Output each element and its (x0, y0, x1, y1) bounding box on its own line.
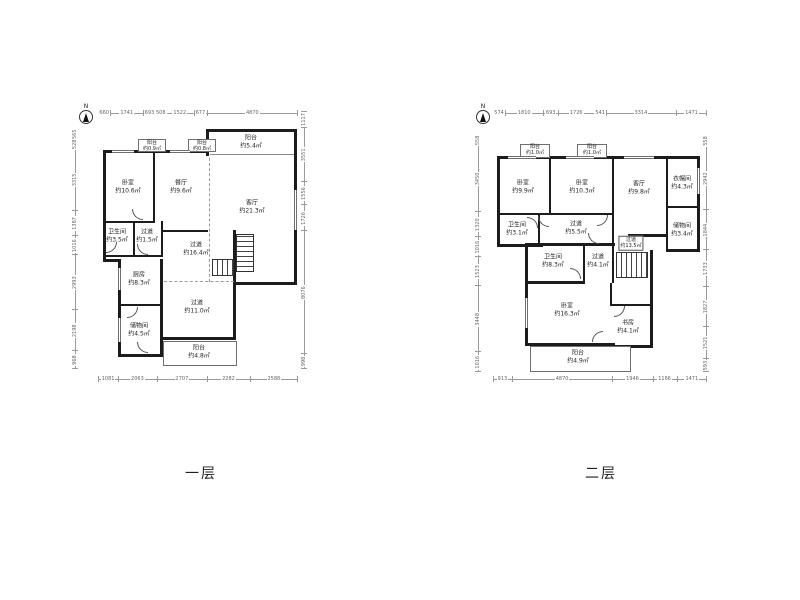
dimension-chain-bottom-floor1: 1081 2063 2707 2282 2588 (98, 374, 298, 383)
room-area: 约5.4㎡ (240, 142, 262, 150)
room-area: 约0.9㎡ (143, 146, 161, 152)
dimension-segment: 2063 (118, 376, 156, 382)
room-name: 卧室 (115, 180, 140, 188)
room-name: 卧室 (512, 180, 534, 188)
room-name: 书房 (617, 320, 639, 328)
window-marker (525, 298, 528, 328)
room-label-bedroom: 卧室约9.9㎡ (512, 180, 534, 195)
room-label-living: 客厅约9.8㎡ (628, 181, 650, 196)
dimension-segment: 1741 (110, 110, 143, 116)
dimension-value: 558 (475, 135, 481, 147)
dimension-segment: 1016 (475, 352, 481, 372)
dimension-value: 1522 (172, 110, 187, 116)
dimension-value: 1081 (101, 376, 116, 382)
room-label-hallway: 过道约5.5㎡ (565, 221, 587, 236)
dimension-segment: 1726 (301, 205, 307, 231)
dimension-segment: 558 (703, 135, 709, 147)
room-label-storage: 储物间约4.5㎡ (128, 323, 150, 338)
wall-segment (103, 221, 155, 223)
room-label-storage: 储物间约3.4㎡ (671, 223, 693, 238)
window-marker (508, 156, 536, 159)
window-marker (170, 150, 190, 153)
room-area: 约13.5㎡ (620, 243, 641, 249)
dimension-segment: 1117 (301, 111, 307, 128)
dimension-value: 1946 (625, 376, 640, 382)
compass-needle-icon (83, 113, 89, 122)
room-label-hallway: 过道约4.1㎡ (587, 254, 609, 269)
wall-segment (233, 282, 297, 285)
room-area: 约16.4㎡ (183, 249, 208, 257)
dimension-segment: 1726 (558, 110, 594, 116)
door-arc (106, 242, 117, 253)
room-area: 约9.9㎡ (512, 187, 534, 195)
room-name: 卫生间 (106, 229, 128, 237)
room-name: 餐厅 (170, 180, 192, 188)
room-area: 约1.0㎡ (583, 150, 601, 156)
dimension-value: 1556 (301, 186, 307, 201)
dimension-chain-top-floor1: 660 1741 693 508 1522 677 4870 (98, 108, 298, 117)
dimension-segment: 1523 (475, 257, 481, 286)
dimension-value: 1471 (684, 376, 699, 382)
room-name: 卫生间 (542, 254, 564, 262)
room-label-bathroom: 卫生间约3.1㎡ (506, 222, 528, 237)
room-label-study: 书房约4.1㎡ (617, 320, 639, 335)
room-area: 约1.5㎡ (136, 236, 158, 244)
room-area: 约16.3㎡ (554, 310, 579, 318)
dimension-value: 1117 (301, 112, 307, 127)
room-label-bedroom: 卧室约10.6㎡ (115, 180, 140, 195)
dimension-segment: 2588 (250, 376, 298, 382)
dimension-segment: 593 (703, 359, 709, 372)
door-arc (614, 306, 625, 317)
dimension-segment: 1521 (703, 327, 709, 360)
room-label-balcony: 阳台约1.0㎡ (583, 144, 601, 157)
room-area: 约4.8㎡ (188, 352, 210, 360)
staircase (616, 252, 648, 278)
room-label-balcony: 阳台约0.9㎡ (143, 140, 161, 153)
dimension-value: 1521 (703, 336, 709, 351)
door-arc (592, 331, 603, 342)
window-marker (112, 150, 134, 153)
room-area: 约5.5㎡ (565, 228, 587, 236)
dimension-value: 693 (144, 110, 156, 116)
dimension-segment: 2282 (207, 376, 250, 382)
dimension-segment: 1827 (703, 287, 709, 326)
room-label-cloakroom: 衣帽间约4.3㎡ (671, 176, 693, 191)
room-label-balcony: 阳台约0.8㎡ (193, 140, 211, 153)
dimension-value: 1844 (703, 223, 709, 238)
compass-icon: N (475, 103, 491, 124)
room-name: 过道 (587, 254, 609, 262)
room-label-balcony: 阳台约4.9㎡ (567, 350, 589, 365)
room-area: 约9.6㎡ (170, 187, 192, 195)
room-area: 约21.3㎡ (239, 207, 264, 215)
room-area: 约4.1㎡ (587, 261, 609, 269)
room-name: 卫生间 (506, 222, 528, 230)
room-name: 衣帽间 (671, 176, 693, 184)
dimension-value: 1016 (475, 355, 481, 370)
door-arc (137, 244, 148, 255)
dimension-value: 4870 (245, 110, 260, 116)
wall-segment (612, 159, 614, 249)
dimension-value: 2588 (267, 376, 282, 382)
dashed-divider (209, 158, 210, 282)
dimension-value: 913 (497, 376, 509, 382)
wall-segment (160, 337, 236, 340)
dimension-value: 8076 (301, 285, 307, 300)
wall-segment (118, 354, 163, 357)
room-area: 约8.3㎡ (128, 279, 150, 287)
wall-segment (650, 250, 653, 348)
dimension-value: 574 (493, 110, 505, 116)
wall-segment (497, 156, 500, 247)
dimension-value: 3315 (72, 173, 78, 188)
dimension-chain-right-floor1: 1117 3551 1556 1726 8076 998 (299, 111, 308, 369)
floor1-title: 一层 (185, 463, 217, 483)
dimension-value: 1827 (703, 300, 709, 315)
room-label-kitchen: 厨房约8.3㎡ (128, 272, 150, 287)
room-area: 约10.6㎡ (115, 187, 140, 195)
dimension-segment: 3551 (301, 128, 307, 182)
dimension-value: 2198 (72, 323, 78, 338)
window-marker (294, 190, 297, 230)
dimension-segment: 660 (98, 110, 110, 116)
room-label-hallway: 过道约1.5㎡ (136, 229, 158, 244)
dimension-value: 968 (72, 354, 78, 366)
dimension-value: 3551 (301, 147, 307, 162)
wall-segment (549, 159, 551, 215)
room-area: 约4.9㎡ (567, 357, 589, 365)
dimension-value: 541 (594, 110, 606, 116)
room-label-dining: 餐厅约9.6㎡ (170, 180, 192, 195)
dimension-value: 2993 (72, 275, 78, 290)
room-label-hallway: 过道约13.5㎡ (618, 236, 643, 251)
wall-segment (206, 129, 297, 132)
dimension-value: 1741 (119, 110, 134, 116)
room-area: 约0.8㎡ (193, 146, 211, 152)
dimension-segment: 1556 (301, 182, 307, 206)
dimension-segment: 998 (301, 354, 307, 369)
dimension-chain-bottom-floor2: 913 4870 1946 1166 1471 (493, 374, 707, 383)
room-area: 约9.8㎡ (628, 188, 650, 196)
dimension-value: 3314 (634, 110, 649, 116)
wall-segment (525, 243, 528, 346)
room-area: 约3.5㎡ (106, 236, 128, 244)
dimension-value: 4870 (555, 376, 570, 382)
wall-segment (666, 249, 700, 252)
dimension-segment: 4870 (207, 110, 298, 116)
compass-n-label: N (475, 103, 491, 110)
dimension-segment: 1016 (72, 236, 78, 255)
dimension-value: 1471 (684, 110, 699, 116)
staircase (236, 234, 254, 272)
wall-segment (666, 206, 698, 208)
room-area: 约8.3㎡ (542, 261, 564, 269)
compass-circle (476, 110, 490, 124)
wall-segment (525, 281, 585, 284)
dimension-value: 508 (155, 110, 167, 116)
dimension-value: 593 (703, 360, 709, 372)
room-area: 约4.5㎡ (128, 330, 150, 338)
dimension-segment: 574 (493, 110, 505, 116)
dimension-segment: 1522 (166, 110, 195, 116)
dimension-value: 2942 (703, 171, 709, 186)
wall-segment (610, 283, 612, 306)
room-name: 阳台 (567, 350, 589, 358)
dimension-chain-left-floor1: 565 528 3315 1387 1016 2993 2198 968 (70, 129, 79, 369)
dimension-segment: 541 (594, 110, 605, 116)
dimension-segment: 8076 (301, 231, 307, 353)
wall-segment (153, 150, 155, 223)
room-area: 约10.3㎡ (569, 187, 594, 195)
dimension-value: 1016 (72, 238, 78, 253)
door-arc (127, 307, 138, 318)
room-area: 约11.0㎡ (184, 307, 209, 315)
wall-segment (525, 243, 615, 246)
dimension-segment: 508 (156, 110, 166, 116)
dimension-segment: 1081 (98, 376, 118, 382)
room-name: 过道 (136, 229, 158, 237)
room-name: 过道 (565, 221, 587, 229)
compass-needle-icon (480, 113, 486, 122)
wall-segment (119, 304, 161, 306)
dimension-value: 528 (72, 139, 78, 151)
room-label-living: 客厅约21.3㎡ (239, 200, 264, 215)
compass-n-label: N (78, 103, 94, 110)
dimension-value: 2282 (221, 376, 236, 382)
window-marker (118, 318, 121, 342)
dimension-segment: 1320 (475, 212, 481, 237)
dimension-value: 660 (98, 110, 110, 116)
dimension-value: 693 (545, 110, 557, 116)
room-area: 约3.1㎡ (506, 229, 528, 237)
dimension-segment: 1016 (475, 237, 481, 257)
dimension-segment: 558 (475, 135, 481, 146)
room-area: 约4.3㎡ (671, 183, 693, 191)
floorplan-canvas: N 660 1741 693 508 1522 677 4870 1081 20… (0, 0, 800, 600)
dimension-value: 1387 (72, 216, 78, 231)
room-label-bedroom: 卧室约10.3㎡ (569, 180, 594, 195)
dimension-segment: 677 (194, 110, 207, 116)
room-label-bathroom: 卫生间约8.3㎡ (542, 254, 564, 269)
room-label-bathroom: 卫生间约3.5㎡ (106, 229, 128, 244)
dimension-segment: 2942 (703, 147, 709, 210)
window-line (210, 154, 294, 155)
door-arc (132, 209, 143, 220)
dimension-segment: 2198 (72, 310, 78, 351)
room-label-balcony: 阳台约4.8㎡ (188, 345, 210, 360)
dimension-value: 677 (195, 110, 207, 116)
dimension-segment: 1946 (612, 376, 652, 382)
dimension-segment: 1844 (703, 210, 709, 250)
dimension-segment: 1733 (703, 250, 709, 287)
wall-segment (163, 230, 208, 232)
room-name: 过道 (183, 242, 208, 250)
dimension-value: 1166 (657, 376, 672, 382)
room-name: 卧室 (569, 180, 594, 188)
window-marker (566, 156, 594, 159)
room-label-hallway: 过道约16.4㎡ (183, 242, 208, 257)
dimension-value: 1726 (569, 110, 584, 116)
window-marker (624, 156, 654, 159)
dimension-value: 2063 (130, 376, 145, 382)
room-label-bedroom: 卧室约16.3㎡ (554, 303, 579, 318)
dimension-segment: 3450 (475, 146, 481, 212)
wall-segment (497, 213, 550, 215)
dimension-value: 998 (301, 356, 307, 368)
room-area: 约3.4㎡ (671, 230, 693, 238)
room-label-balcony: 阳台约1.0㎡ (526, 144, 544, 157)
dimension-value: 1523 (475, 264, 481, 279)
dimension-segment: 2707 (157, 376, 208, 382)
room-name: 客厅 (628, 181, 650, 189)
room-name: 过道 (184, 300, 209, 308)
room-name: 储物间 (128, 323, 150, 331)
dimension-value: 1726 (301, 211, 307, 226)
room-area: 约4.1㎡ (617, 327, 639, 335)
door-arc (527, 217, 538, 228)
wall-segment (161, 221, 163, 256)
dimension-chain-right-floor2: 558 2942 1844 1733 1827 1521 593 (701, 135, 710, 372)
dimension-value: 2707 (175, 376, 190, 382)
room-label-balcony: 阳台约5.4㎡ (240, 135, 262, 150)
dimension-value: 1016 (475, 240, 481, 255)
room-name: 阳台 (240, 135, 262, 143)
wall-segment (133, 223, 135, 256)
dimension-value: 558 (703, 135, 709, 147)
room-name: 卧室 (554, 303, 579, 311)
dashed-divider (164, 281, 234, 282)
dimension-segment: 1166 (653, 376, 677, 382)
dimension-segment: 693 (543, 110, 558, 116)
dimension-segment: 3315 (72, 149, 78, 210)
wall-segment (583, 246, 585, 283)
room-name: 储物间 (671, 223, 693, 231)
dimension-segment: 968 (72, 351, 78, 369)
dimension-segment: 1387 (72, 211, 78, 237)
compass-circle (79, 110, 93, 124)
dimension-segment: 3314 (606, 110, 676, 116)
door-arc (570, 268, 581, 279)
wall-segment (612, 248, 614, 283)
window-marker (697, 168, 700, 194)
dimension-value: 1733 (703, 261, 709, 276)
room-area: 约1.0㎡ (526, 150, 544, 156)
compass-icon: N (78, 103, 94, 124)
dimension-segment: 2993 (72, 255, 78, 310)
door-arc (137, 342, 148, 353)
dimension-segment: 1471 (676, 110, 707, 116)
dimension-segment: 1471 (677, 376, 707, 382)
dimension-value: 1810 (517, 110, 532, 116)
room-name: 阳台 (188, 345, 210, 353)
room-name: 厨房 (128, 272, 150, 280)
dimension-segment: 1810 (505, 110, 543, 116)
dimension-segment: 528 (72, 139, 78, 149)
dimension-segment: 4870 (512, 376, 613, 382)
dimension-value: 3448 (475, 312, 481, 327)
window-marker (118, 268, 121, 290)
door-arc (597, 215, 608, 226)
dimension-value: 3450 (475, 172, 481, 187)
staircase-landing (212, 259, 234, 276)
dimension-segment: 3448 (475, 286, 481, 352)
room-label-hallway: 过道约11.0㎡ (184, 300, 209, 315)
dimension-segment: 913 (493, 376, 512, 382)
dimension-chain-top-floor2: 574 1810 693 1726 541 3314 1471 (493, 108, 707, 117)
room-name: 客厅 (239, 200, 264, 208)
dimension-value: 1320 (475, 217, 481, 232)
dimension-chain-left-floor2: 558 3450 1320 1016 1523 3448 1016 (473, 135, 482, 372)
floor2-title: 二层 (585, 463, 617, 483)
